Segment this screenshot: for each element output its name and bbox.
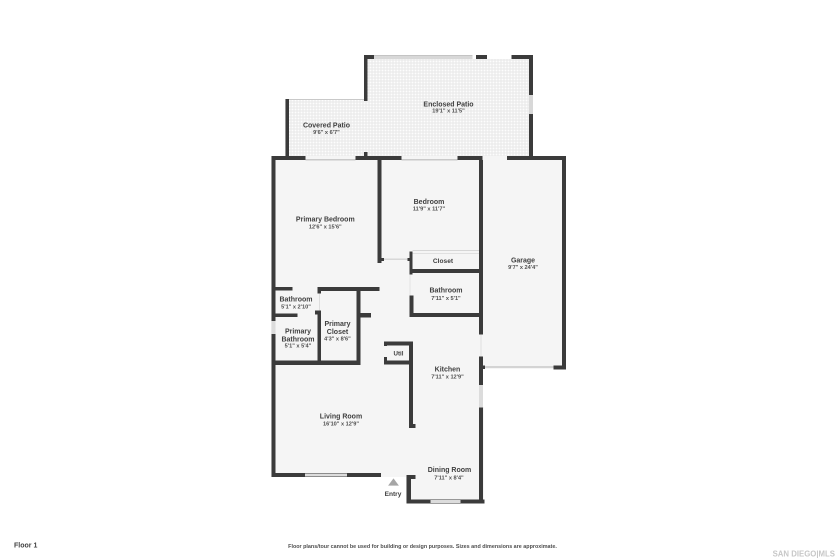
svg-text:5'1" x 5'4": 5'1" x 5'4" xyxy=(285,344,312,350)
svg-text:Primary: Primary xyxy=(324,321,350,328)
svg-text:Bathroom: Bathroom xyxy=(281,337,314,344)
svg-text:Enclosed Patio: Enclosed Patio xyxy=(423,102,473,109)
svg-text:Primary Bedroom: Primary Bedroom xyxy=(296,217,355,224)
svg-text:Floor plans/tour cannot be use: Floor plans/tour cannot be used for buil… xyxy=(288,544,557,550)
svg-text:Closet: Closet xyxy=(327,329,349,336)
svg-text:4'3" x 8'6": 4'3" x 8'6" xyxy=(324,336,351,342)
svg-text:12'6" x 15'6": 12'6" x 15'6" xyxy=(309,224,342,230)
svg-text:9'7" x 24'4": 9'7" x 24'4" xyxy=(508,265,538,271)
svg-text:Garage: Garage xyxy=(511,258,535,265)
svg-text:Bathroom: Bathroom xyxy=(429,288,462,295)
svg-text:Closet: Closet xyxy=(433,258,454,265)
svg-text:7'11" x 8'4": 7'11" x 8'4" xyxy=(434,475,464,481)
svg-text:Covered Patio: Covered Patio xyxy=(303,123,350,130)
svg-text:Primary: Primary xyxy=(285,329,311,336)
svg-text:Living Room: Living Room xyxy=(320,414,362,421)
svg-text:16'10" x 12'9": 16'10" x 12'9" xyxy=(323,421,359,427)
svg-text:9'6" x 6'7": 9'6" x 6'7" xyxy=(313,130,340,136)
svg-text:Util: Util xyxy=(394,351,404,358)
svg-text:Floor 1: Floor 1 xyxy=(14,543,37,550)
svg-text:5'1" x 2'10": 5'1" x 2'10" xyxy=(281,304,311,310)
svg-text:Dining Room: Dining Room xyxy=(428,467,472,474)
svg-text:19'1" x 11'5": 19'1" x 11'5" xyxy=(432,109,465,115)
svg-text:Bedroom: Bedroom xyxy=(414,199,445,206)
svg-text:7'11" x 12'9": 7'11" x 12'9" xyxy=(431,374,464,380)
svg-text:Bathroom: Bathroom xyxy=(279,297,312,304)
svg-text:7'11" x 5'1": 7'11" x 5'1" xyxy=(431,296,461,302)
svg-text:Entry: Entry xyxy=(385,491,402,498)
svg-text:Kitchen: Kitchen xyxy=(435,367,461,374)
svg-text:11'9" x 11'7": 11'9" x 11'7" xyxy=(413,207,446,213)
svg-text:SAN DIEGO|MLS: SAN DIEGO|MLS xyxy=(773,549,835,558)
